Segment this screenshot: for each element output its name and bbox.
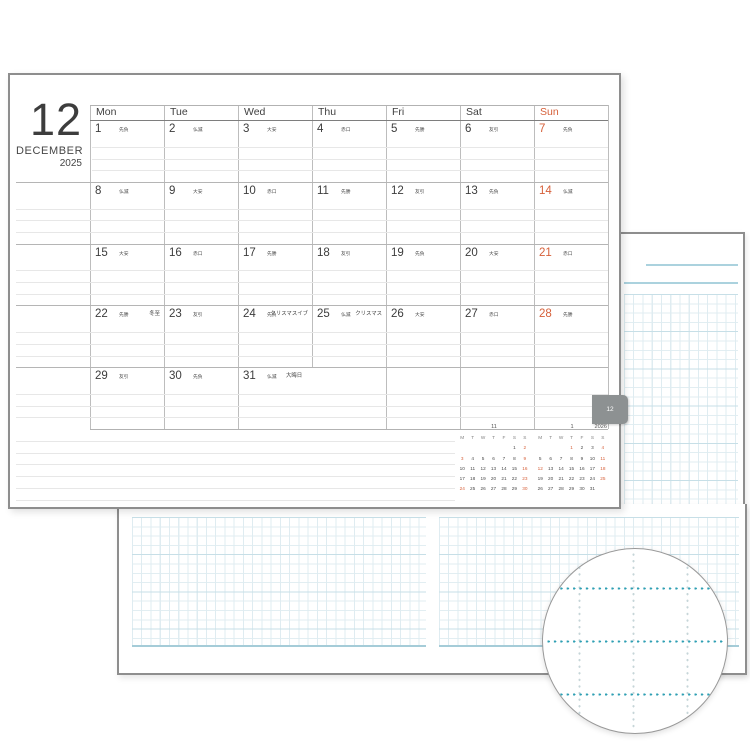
- mini-day: 7: [499, 454, 509, 464]
- day-number: 7: [539, 123, 545, 135]
- notes-header-rule: [624, 282, 738, 284]
- rokuyo-label: 大安: [119, 250, 129, 257]
- holiday-note: クリスマス: [355, 309, 382, 317]
- day-cell-12: 12友引: [386, 182, 460, 244]
- footer-writing-line: [16, 464, 455, 465]
- mini-day: 3: [587, 443, 597, 453]
- mini-weekday: S: [598, 433, 608, 443]
- mini-day: 13: [488, 464, 498, 474]
- mini-day: 5: [478, 454, 488, 464]
- rokuyo-label: 赤口: [267, 188, 277, 195]
- mini-weekday: W: [556, 433, 566, 443]
- mini-day: 15: [566, 464, 576, 474]
- mini-calendar-week-row: 10111213141516: [457, 464, 531, 474]
- mini-day: 6: [488, 454, 498, 464]
- mini-day: 9: [577, 454, 587, 464]
- mini-calendar-week-row: 19202122232425: [535, 474, 609, 484]
- month-year: 2025: [16, 158, 82, 169]
- mini-calendar-week-row: 1234: [535, 443, 609, 453]
- day-number: 4: [317, 123, 323, 135]
- mini-calendar-november: 11MTWTFSS1234567891011121314151617181920…: [457, 424, 531, 495]
- day-number: 26: [391, 308, 404, 320]
- mini-calendar-weekday-row: MTWTFSS: [535, 433, 609, 443]
- mini-day: 27: [488, 484, 498, 494]
- mini-day: 6: [545, 454, 555, 464]
- rokuyo-label: 赤口: [489, 311, 499, 318]
- day-number: 6: [465, 123, 471, 135]
- mini-day: 17: [587, 464, 597, 474]
- rokuyo-label: 先負: [563, 126, 573, 133]
- mini-day: [499, 443, 509, 453]
- mini-day: 4: [467, 454, 477, 464]
- weekday-header-sun: Sun: [540, 106, 559, 118]
- mini-weekday: T: [467, 433, 477, 443]
- mini-day: 1: [566, 443, 576, 453]
- mini-day: 27: [545, 484, 555, 494]
- mini-day: 10: [457, 464, 467, 474]
- mini-day: 12: [478, 464, 488, 474]
- day-cell-8: 8仏滅: [90, 182, 164, 244]
- mini-day: 16: [520, 464, 530, 474]
- day-number: 18: [317, 247, 330, 259]
- dotted-grid-horizontal: [547, 587, 723, 590]
- mini-day: 25: [467, 484, 477, 494]
- mini-day: 5: [535, 454, 545, 464]
- day-cell-7: 7先負: [534, 120, 608, 182]
- day-number: 11: [317, 185, 329, 197]
- mini-weekday: T: [488, 433, 498, 443]
- mini-day: [545, 443, 555, 453]
- mini-day: 15: [509, 464, 519, 474]
- month-title-block: 12 DECEMBER 2025: [16, 97, 82, 169]
- weekday-header-mon: Mon: [96, 106, 116, 118]
- rokuyo-label: 先勝: [341, 188, 351, 195]
- day-cell-21: 21赤口: [534, 244, 608, 306]
- mini-day: 14: [556, 464, 566, 474]
- grid-left-page: [132, 517, 426, 647]
- mini-day: [535, 443, 545, 453]
- day-number: 8: [95, 185, 101, 197]
- mini-day: 29: [566, 484, 576, 494]
- footer-writing-line: [16, 453, 455, 454]
- day-number: 19: [391, 247, 404, 259]
- mini-day: 21: [499, 474, 509, 484]
- mini-calendar-week-row: 12131415161718: [535, 464, 609, 474]
- mini-day: 2: [520, 443, 530, 453]
- rokuyo-label: 大安: [415, 311, 425, 318]
- day-number: 30: [169, 370, 182, 382]
- mini-day: 30: [577, 484, 587, 494]
- day-number: 29: [95, 370, 108, 382]
- mini-day: 24: [457, 484, 467, 494]
- mini-day: 29: [509, 484, 519, 494]
- footer-writing-line: [16, 488, 455, 489]
- footer-writing-line: [16, 476, 455, 477]
- weekday-header-thu: Thu: [318, 106, 336, 118]
- day-number: 15: [95, 247, 108, 259]
- mini-day: 18: [467, 474, 477, 484]
- mini-day: 14: [499, 464, 509, 474]
- day-cell-5: 5先勝: [386, 120, 460, 182]
- mini-day: 12: [535, 464, 545, 474]
- mini-calendar-january: 12026MTWTFSS1234567891011121314151617181…: [535, 424, 609, 495]
- mini-day: 11: [598, 454, 608, 464]
- mini-weekday: S: [587, 433, 597, 443]
- mini-day: 31: [587, 484, 597, 494]
- holiday-note: 冬至: [149, 309, 160, 317]
- mini-day: 19: [535, 474, 545, 484]
- mini-day: 16: [577, 464, 587, 474]
- mini-day: 24: [587, 474, 597, 484]
- rokuyo-label: 先負: [415, 250, 425, 257]
- day-number: 14: [539, 185, 552, 197]
- mini-weekday: S: [509, 433, 519, 443]
- weekday-header-fri: Fri: [392, 106, 404, 118]
- weekday-header-wed: Wed: [244, 106, 265, 118]
- dotted-grid-horizontal: [547, 693, 723, 696]
- mini-weekday: T: [566, 433, 576, 443]
- mini-day: 17: [457, 474, 467, 484]
- mini-calendar-week-row: 24252627282930: [457, 484, 531, 494]
- footer-writing-line: [16, 441, 455, 442]
- mini-day: [478, 443, 488, 453]
- mini-weekday: M: [535, 433, 545, 443]
- rokuyo-label: 先勝: [119, 311, 129, 318]
- footer-writing-line: [16, 500, 455, 501]
- mini-day: 28: [556, 484, 566, 494]
- grid-base-rule: [132, 645, 426, 647]
- mini-day: 21: [556, 474, 566, 484]
- rokuyo-label: 仏滅: [267, 373, 277, 380]
- day-cell-17: 17先勝: [238, 244, 312, 306]
- rokuyo-label: 仏滅: [341, 311, 351, 318]
- mini-day: 1: [509, 443, 519, 453]
- mini-day: 30: [520, 484, 530, 494]
- rokuyo-label: 友引: [415, 188, 425, 195]
- mini-day: 8: [509, 454, 519, 464]
- day-cell-24: 24先負クリスマスイブ: [238, 305, 312, 367]
- mini-day: 13: [545, 464, 555, 474]
- mini-calendar-year: 2026: [595, 424, 607, 430]
- mini-day: 25: [598, 474, 608, 484]
- dotted-grid-horizontal: [547, 640, 723, 643]
- day-number: 13: [465, 185, 478, 197]
- day-cell-28: 28先勝: [534, 305, 608, 367]
- day-cell-16: 16赤口: [164, 244, 238, 306]
- day-cell-27: 27赤口: [460, 305, 534, 367]
- mini-day: 10: [587, 454, 597, 464]
- mini-weekday: F: [577, 433, 587, 443]
- mini-day: 26: [478, 484, 488, 494]
- mini-day: [556, 443, 566, 453]
- rokuyo-label: 先勝: [415, 126, 425, 133]
- day-cell-9: 9大安: [164, 182, 238, 244]
- day-number: 16: [169, 247, 182, 259]
- day-cell-30: 30先負: [164, 367, 238, 429]
- rokuyo-label: 赤口: [193, 250, 203, 257]
- mini-day: 19: [478, 474, 488, 484]
- rokuyo-label: 赤口: [563, 250, 573, 257]
- rokuyo-label: 大安: [267, 126, 277, 133]
- day-cell-10: 10赤口: [238, 182, 312, 244]
- mini-day: 23: [520, 474, 530, 484]
- mini-calendar-week-row: 17181920212223: [457, 474, 531, 484]
- mini-weekday: S: [520, 433, 530, 443]
- day-number: 24: [243, 308, 256, 320]
- index-tab: 12: [592, 395, 628, 424]
- day-number: 12: [391, 185, 404, 197]
- day-number: 22: [95, 308, 108, 320]
- mini-day: [488, 443, 498, 453]
- day-cell-13: 13先負: [460, 182, 534, 244]
- holiday-note: 大晦日: [286, 371, 302, 379]
- rokuyo-label: 大安: [489, 250, 499, 257]
- mini-day: [457, 443, 467, 453]
- rokuyo-label: 仏滅: [563, 188, 573, 195]
- mini-day: 11: [467, 464, 477, 474]
- day-number: 5: [391, 123, 397, 135]
- rokuyo-label: 仏滅: [193, 126, 203, 133]
- day-cell-15: 15大安: [90, 244, 164, 306]
- weekday-header-sat: Sat: [466, 106, 482, 118]
- day-cell-20: 20大安: [460, 244, 534, 306]
- mini-calendar-weekday-row: MTWTFSS: [457, 433, 531, 443]
- day-cell-14: 14仏滅: [534, 182, 608, 244]
- mini-day: [598, 484, 608, 494]
- grid-vline: [608, 105, 609, 429]
- rokuyo-label: 先負: [119, 126, 129, 133]
- day-cell-1: 1先負: [90, 120, 164, 182]
- mini-calendar-week-row: 262728293031: [535, 484, 609, 494]
- day-number: 1: [95, 123, 101, 135]
- mini-calendar-title: 12026: [535, 424, 609, 433]
- mini-calendar-week-row: 3456789: [457, 454, 531, 464]
- mini-weekday: F: [499, 433, 509, 443]
- day-number: 31: [243, 370, 256, 382]
- mini-day: 20: [488, 474, 498, 484]
- mini-day: 2: [577, 443, 587, 453]
- weekday-header-tue: Tue: [170, 106, 188, 118]
- day-number: 23: [169, 308, 182, 320]
- day-cell-2: 2仏滅: [164, 120, 238, 182]
- rokuyo-label: 先勝: [267, 250, 277, 257]
- mini-day: 26: [535, 484, 545, 494]
- day-cell-11: 11先勝: [312, 182, 386, 244]
- day-number: 10: [243, 185, 256, 197]
- mini-day: 22: [509, 474, 519, 484]
- notes-header-rule: [646, 264, 738, 266]
- day-number: 27: [465, 308, 478, 320]
- monthly-page: 12 DECEMBER 2025 Mon Tue Wed Thu Fri Sat…: [8, 73, 621, 509]
- holiday-note: クリスマスイブ: [270, 309, 308, 317]
- mini-day: 28: [499, 484, 509, 494]
- day-number: 2: [169, 123, 175, 135]
- day-cell-31: 31仏滅大晦日: [238, 367, 386, 429]
- grid-hline-top: [90, 105, 608, 106]
- mini-day: 23: [577, 474, 587, 484]
- rokuyo-label: 先勝: [563, 311, 573, 318]
- rokuyo-label: 仏滅: [119, 188, 129, 195]
- rokuyo-label: 先負: [193, 373, 203, 380]
- mini-calendar-week-row: 12: [457, 443, 531, 453]
- mini-calendar-week-row: 567891011: [535, 454, 609, 464]
- day-cell-4: 4赤口: [312, 120, 386, 182]
- day-cell-19: 19先負: [386, 244, 460, 306]
- day-cell-25: 25仏滅クリスマス: [312, 305, 386, 367]
- day-number: 28: [539, 308, 552, 320]
- mini-day: 7: [556, 454, 566, 464]
- day-number: 25: [317, 308, 330, 320]
- mini-day: [467, 443, 477, 453]
- day-cell-18: 18友引: [312, 244, 386, 306]
- mini-weekday: M: [457, 433, 467, 443]
- planner-product-photo: 12 DECEMBER 2025 Mon Tue Wed Thu Fri Sat…: [0, 0, 750, 750]
- mini-day: 3: [457, 454, 467, 464]
- mini-day: 9: [520, 454, 530, 464]
- rokuyo-label: 友引: [193, 311, 203, 318]
- day-cell-6: 6友引: [460, 120, 534, 182]
- mini-day: 8: [566, 454, 576, 464]
- day-cell-26: 26大安: [386, 305, 460, 367]
- mini-day: 20: [545, 474, 555, 484]
- month-name: DECEMBER: [16, 145, 82, 157]
- day-number: 9: [169, 185, 175, 197]
- day-cell-3: 3大安: [238, 120, 312, 182]
- magnifier-circle: [542, 548, 728, 734]
- mini-day: 22: [566, 474, 576, 484]
- rokuyo-label: 先負: [489, 188, 499, 195]
- mini-calendar-title: 11: [457, 424, 531, 433]
- mini-weekday: T: [545, 433, 555, 443]
- day-number: 20: [465, 247, 478, 259]
- rokuyo-label: 赤口: [341, 126, 351, 133]
- mini-day: 18: [598, 464, 608, 474]
- day-number: 17: [243, 247, 256, 259]
- rokuyo-label: 大安: [193, 188, 203, 195]
- month-number: 12: [16, 97, 82, 143]
- day-cell-23: 23友引: [164, 305, 238, 367]
- day-cell-29: 29友引: [90, 367, 164, 429]
- mini-weekday: W: [478, 433, 488, 443]
- day-cell-22: 22先勝冬至: [90, 305, 164, 367]
- rokuyo-label: 友引: [341, 250, 351, 257]
- rokuyo-label: 友引: [119, 373, 129, 380]
- day-number: 3: [243, 123, 249, 135]
- mini-day: 4: [598, 443, 608, 453]
- rokuyo-label: 友引: [489, 126, 499, 133]
- day-number: 21: [539, 247, 552, 259]
